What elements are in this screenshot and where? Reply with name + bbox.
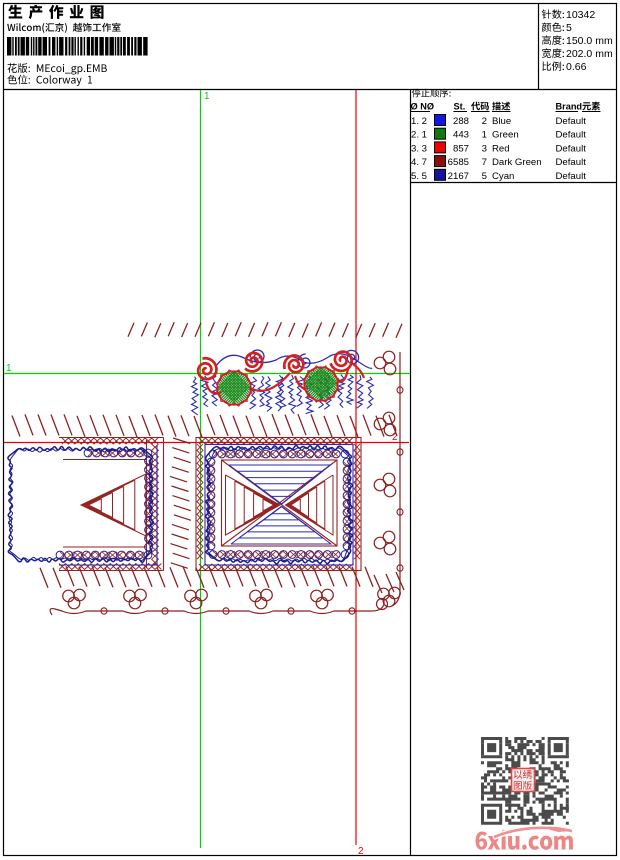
svg-text:3. 3: 3. 3 [411, 143, 427, 154]
svg-text:7: 7 [482, 157, 487, 168]
svg-text:150.0 mm: 150.0 mm [566, 35, 613, 47]
svg-text:3: 3 [482, 143, 487, 154]
svg-text:288: 288 [453, 116, 469, 127]
svg-text:5. 5: 5. 5 [411, 171, 427, 182]
svg-text:Brand: Brand [556, 102, 583, 112]
svg-text:Ø NØ: Ø NØ [411, 102, 434, 112]
svg-text:Cyan: Cyan [492, 171, 514, 182]
svg-text:Red: Red [492, 143, 510, 154]
svg-text:0.66: 0.66 [566, 61, 587, 73]
svg-text:Green: Green [492, 130, 519, 141]
svg-text:1: 1 [482, 130, 487, 141]
svg-text:Default: Default [556, 116, 587, 127]
svg-text:Default: Default [556, 143, 587, 154]
svg-text:5: 5 [566, 22, 572, 34]
svg-text:Default: Default [556, 130, 587, 141]
svg-text:443: 443 [453, 130, 469, 141]
svg-text:5: 5 [482, 171, 487, 182]
svg-text:1: 1 [204, 91, 210, 102]
svg-text:10342: 10342 [566, 9, 595, 21]
svg-text:2167: 2167 [448, 171, 469, 182]
svg-text:857: 857 [453, 143, 469, 154]
svg-text:1. 2: 1. 2 [411, 116, 427, 127]
svg-text:St.: St. [454, 102, 466, 112]
svg-text:2: 2 [358, 846, 364, 857]
svg-text:2. 1: 2. 1 [411, 130, 427, 141]
svg-text:Default: Default [556, 157, 587, 168]
svg-text:Blue: Blue [492, 116, 511, 127]
svg-text:4. 7: 4. 7 [411, 157, 427, 168]
svg-text:Dark Green: Dark Green [492, 157, 542, 168]
svg-text:1: 1 [6, 363, 12, 374]
svg-text:6585: 6585 [448, 157, 469, 168]
svg-text:2: 2 [482, 116, 487, 127]
svg-text:Default: Default [556, 171, 587, 182]
svg-text:202.0 mm: 202.0 mm [566, 48, 613, 60]
